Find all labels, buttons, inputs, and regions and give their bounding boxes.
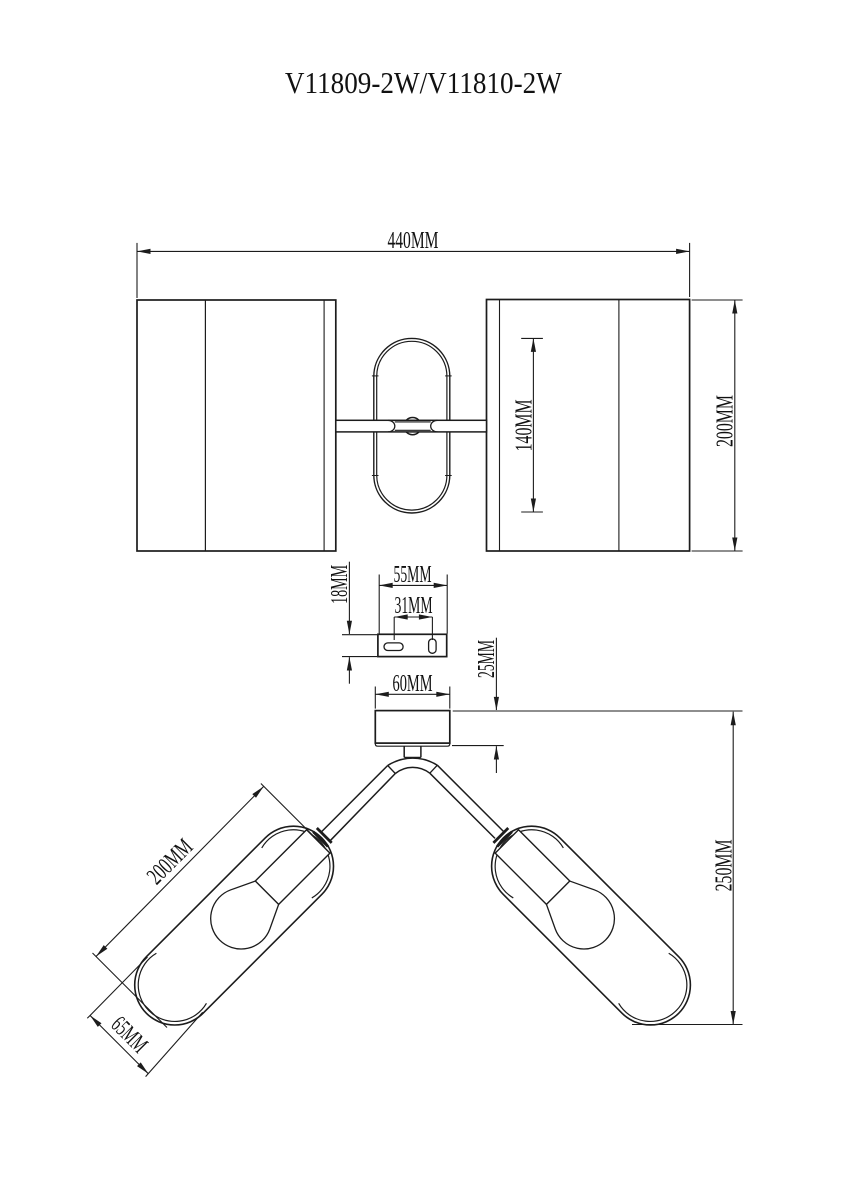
svg-text:55MM: 55MM: [394, 562, 432, 588]
svg-text:18MM: 18MM: [327, 565, 353, 604]
svg-text:V11809-2W/V11810-2W: V11809-2W/V11810-2W: [285, 65, 563, 100]
svg-text:200MM: 200MM: [713, 395, 739, 447]
svg-text:31MM: 31MM: [395, 593, 433, 619]
svg-text:140MM: 140MM: [512, 399, 538, 451]
svg-text:25MM: 25MM: [474, 640, 500, 678]
svg-text:250MM: 250MM: [712, 839, 738, 891]
svg-text:440MM: 440MM: [388, 228, 439, 254]
svg-text:60MM: 60MM: [393, 671, 433, 697]
